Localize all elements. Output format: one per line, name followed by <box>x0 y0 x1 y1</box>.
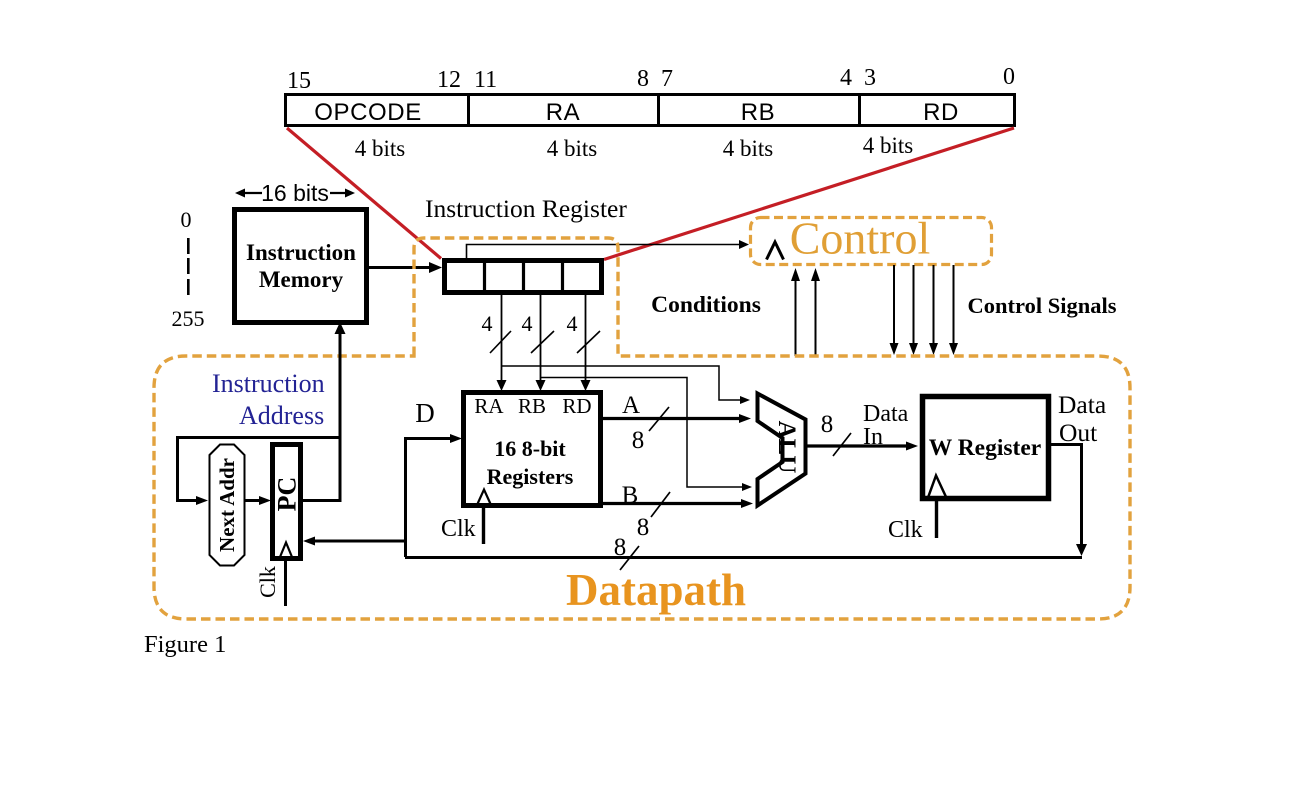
svg-text:A: A <box>622 392 640 419</box>
svg-text:Conditions: Conditions <box>651 292 761 318</box>
svg-text:8: 8 <box>637 514 650 541</box>
svg-text:0: 0 <box>1003 64 1015 90</box>
svg-text:Instruction Register: Instruction Register <box>425 194 627 223</box>
svg-text:4: 4 <box>482 311 493 336</box>
svg-text:8: 8 <box>821 411 834 438</box>
svg-text:RB: RB <box>518 394 546 418</box>
svg-text:8: 8 <box>637 66 649 92</box>
svg-text:D: D <box>415 398 435 428</box>
svg-text:8: 8 <box>632 427 645 454</box>
svg-text:Data: Data <box>1058 390 1106 419</box>
svg-text:ALU: ALU <box>773 421 800 474</box>
svg-text:Figure 1: Figure 1 <box>144 631 226 658</box>
svg-text:255: 255 <box>172 306 205 331</box>
svg-text:4 bits: 4 bits <box>863 133 914 158</box>
svg-text:3: 3 <box>864 65 876 91</box>
svg-text:Memory: Memory <box>259 267 344 292</box>
svg-text:7: 7 <box>661 66 673 92</box>
svg-text:Control Signals: Control Signals <box>968 293 1117 318</box>
svg-text:W Register: W Register <box>929 435 1041 461</box>
svg-text:4 bits: 4 bits <box>547 136 598 161</box>
svg-text:Datapath: Datapath <box>566 565 746 615</box>
svg-text:Clk: Clk <box>255 566 280 598</box>
svg-text:0: 0 <box>181 207 192 232</box>
svg-text:4: 4 <box>567 311 578 336</box>
svg-text:RD: RD <box>923 99 959 126</box>
svg-text:4: 4 <box>840 65 852 91</box>
svg-text:16 bits: 16 bits <box>261 180 329 206</box>
svg-text:4 bits: 4 bits <box>355 136 406 161</box>
svg-text:RA: RA <box>474 394 504 418</box>
svg-text:15: 15 <box>287 68 311 94</box>
svg-text:12: 12 <box>437 67 461 93</box>
svg-text:RD: RD <box>562 394 591 418</box>
svg-text:RB: RB <box>741 99 776 126</box>
svg-text:Instruction: Instruction <box>212 369 325 398</box>
svg-text:Clk: Clk <box>441 516 476 542</box>
svg-text:Out: Out <box>1059 418 1097 447</box>
svg-text:Address: Address <box>239 401 324 430</box>
svg-text:Next Addr: Next Addr <box>215 458 239 552</box>
svg-text:Control: Control <box>790 213 931 264</box>
svg-text:16 8-bit: 16 8-bit <box>494 436 566 461</box>
svg-text:Clk: Clk <box>888 517 923 543</box>
svg-text:OPCODE: OPCODE <box>314 99 422 126</box>
svg-text:4: 4 <box>522 311 533 336</box>
svg-text:PC: PC <box>273 477 302 512</box>
svg-text:4 bits: 4 bits <box>723 136 774 161</box>
svg-text:B: B <box>622 482 639 509</box>
svg-text:11: 11 <box>474 67 497 93</box>
svg-text:Instruction: Instruction <box>246 240 356 265</box>
svg-text:8: 8 <box>614 534 627 561</box>
svg-text:Registers: Registers <box>487 464 574 489</box>
svg-text:In: In <box>863 424 883 450</box>
svg-text:RA: RA <box>546 99 581 126</box>
